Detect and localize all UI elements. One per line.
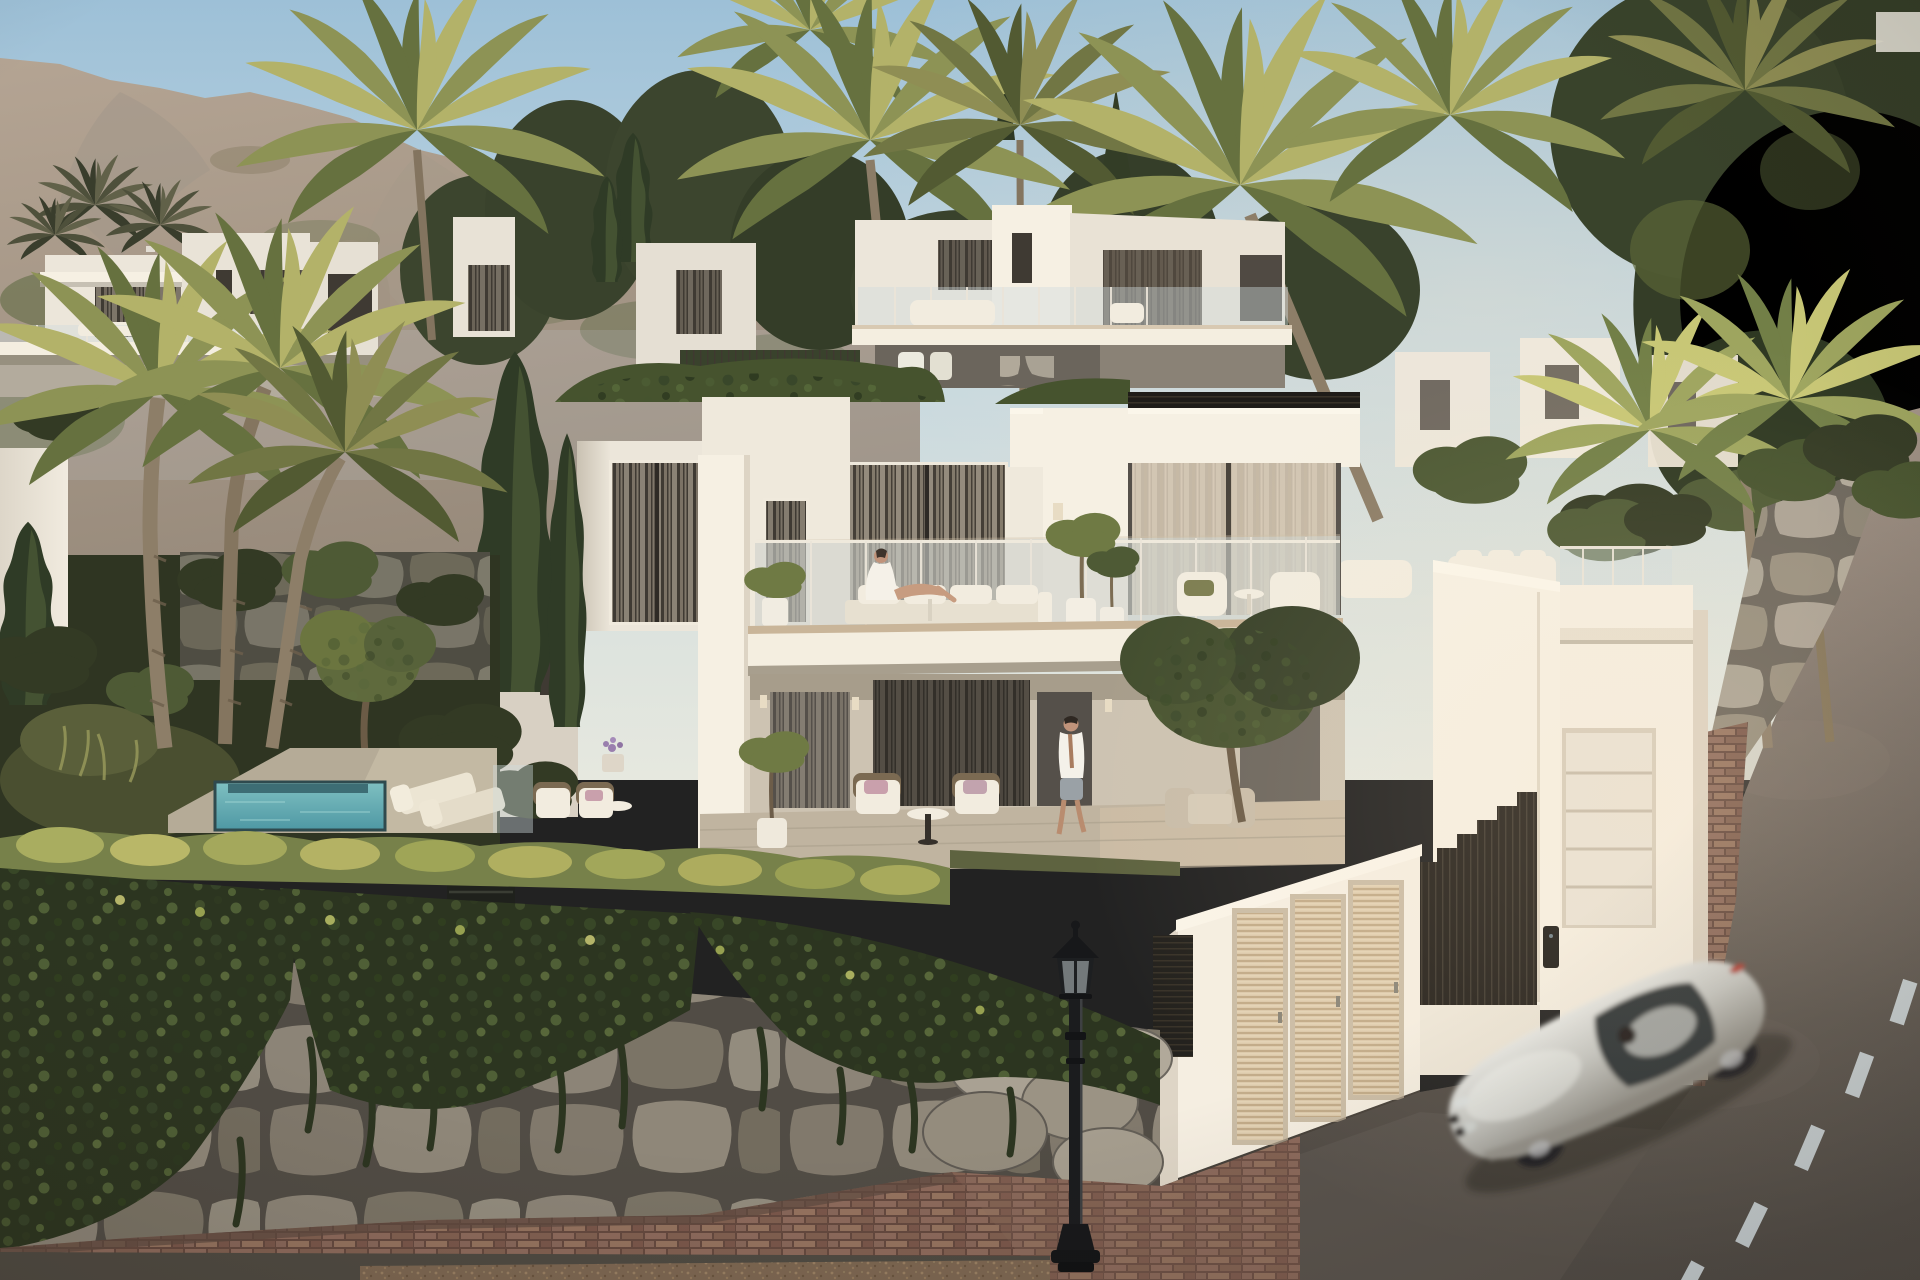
scene-canvas bbox=[0, 0, 1920, 1280]
villa-hillside-render bbox=[0, 0, 1920, 1280]
color-grade bbox=[0, 0, 1920, 1280]
